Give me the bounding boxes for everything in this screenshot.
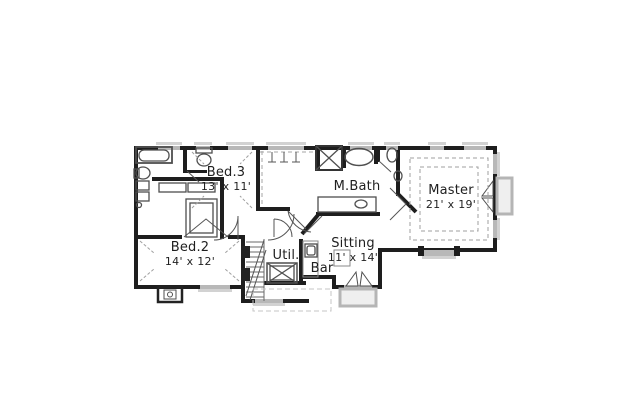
room-dims: 14' x 12' <box>165 256 215 268</box>
room-label-master: Master 21' x 19' <box>426 184 476 210</box>
window <box>200 285 230 289</box>
window <box>228 146 252 150</box>
master-wc-door <box>379 161 391 172</box>
window-sill <box>497 218 500 240</box>
window <box>493 154 497 174</box>
bath-toilet-divider <box>183 146 187 173</box>
util-right-wall <box>299 239 303 285</box>
sitting-bay-casement-glyph <box>346 272 372 286</box>
floor-plan-page: Bed.3 13' x 11' M.Bath Master 21' x 19' … <box>0 0 620 415</box>
left-wall <box>134 146 138 289</box>
window-sill <box>497 152 500 176</box>
wc2-divider <box>376 146 380 162</box>
room-name: M.Bath <box>334 180 381 194</box>
chimney-flue <box>168 292 173 297</box>
room-label-bar: Bar <box>311 262 334 276</box>
window-sill <box>422 256 456 259</box>
window <box>430 146 444 150</box>
room-label-sitting: Sitting 11' x 14' <box>328 237 378 263</box>
master-window-stub-left <box>418 246 424 256</box>
room-name: Bed.3 <box>207 166 246 180</box>
stair-newel-post <box>241 268 250 281</box>
hanger-glyphs <box>268 152 300 162</box>
window-sill <box>348 142 374 145</box>
window <box>464 146 486 150</box>
bar-sink-basin <box>307 246 315 255</box>
room-label-util: Util. <box>273 249 300 263</box>
chimney-inner <box>164 290 176 299</box>
bed3-right-wall <box>256 146 260 211</box>
window <box>268 146 304 150</box>
window <box>493 220 497 238</box>
wardrobe-inner <box>190 203 213 233</box>
bed2-top-wall-b <box>228 235 245 239</box>
stair-newel-post <box>241 246 250 258</box>
window-sill <box>253 303 285 306</box>
room-name: Sitting <box>331 237 375 251</box>
room-name: Util. <box>273 249 300 263</box>
window-sill <box>462 142 488 145</box>
window <box>424 250 454 256</box>
sitting-right-wall <box>378 248 382 289</box>
vanity-sink-icon <box>355 200 367 208</box>
room-label-mbath: M.Bath <box>334 180 381 194</box>
room-label-bed3: Bed.3 13' x 11' <box>201 166 251 192</box>
room-name: Bar <box>311 262 334 276</box>
window <box>255 299 283 303</box>
master-window-stub-right <box>454 246 460 256</box>
window-sill <box>384 142 400 145</box>
util-door <box>274 219 292 237</box>
room-dims: 21' x 19' <box>426 199 476 211</box>
room-dims: 13' x 11' <box>201 181 251 193</box>
room-dims: 11' x 14' <box>328 252 378 264</box>
walk-in-closet-rods <box>260 151 314 205</box>
chimney-icon <box>158 287 182 302</box>
garden-tub-icon <box>345 149 373 166</box>
shelf-icon <box>159 183 186 192</box>
room-name: Master <box>428 184 474 198</box>
room-name: Bed.2 <box>171 241 210 255</box>
toilet-bowl-icon <box>387 148 397 162</box>
window-sill <box>156 142 182 145</box>
room-label-bed2: Bed.2 14' x 12' <box>165 241 215 267</box>
window-sill <box>428 142 446 145</box>
floor-plan-drawing <box>0 0 620 415</box>
window-sill <box>194 142 212 145</box>
sitting-bay-window <box>340 289 376 306</box>
bed2-top-wall-a <box>134 235 182 239</box>
bathtub-basin-icon <box>139 150 169 161</box>
window-sill <box>266 142 306 145</box>
master-bay-window <box>497 178 512 214</box>
wic-bottom-wall <box>256 207 290 211</box>
window-sill <box>198 289 232 292</box>
window-sill <box>226 142 254 145</box>
